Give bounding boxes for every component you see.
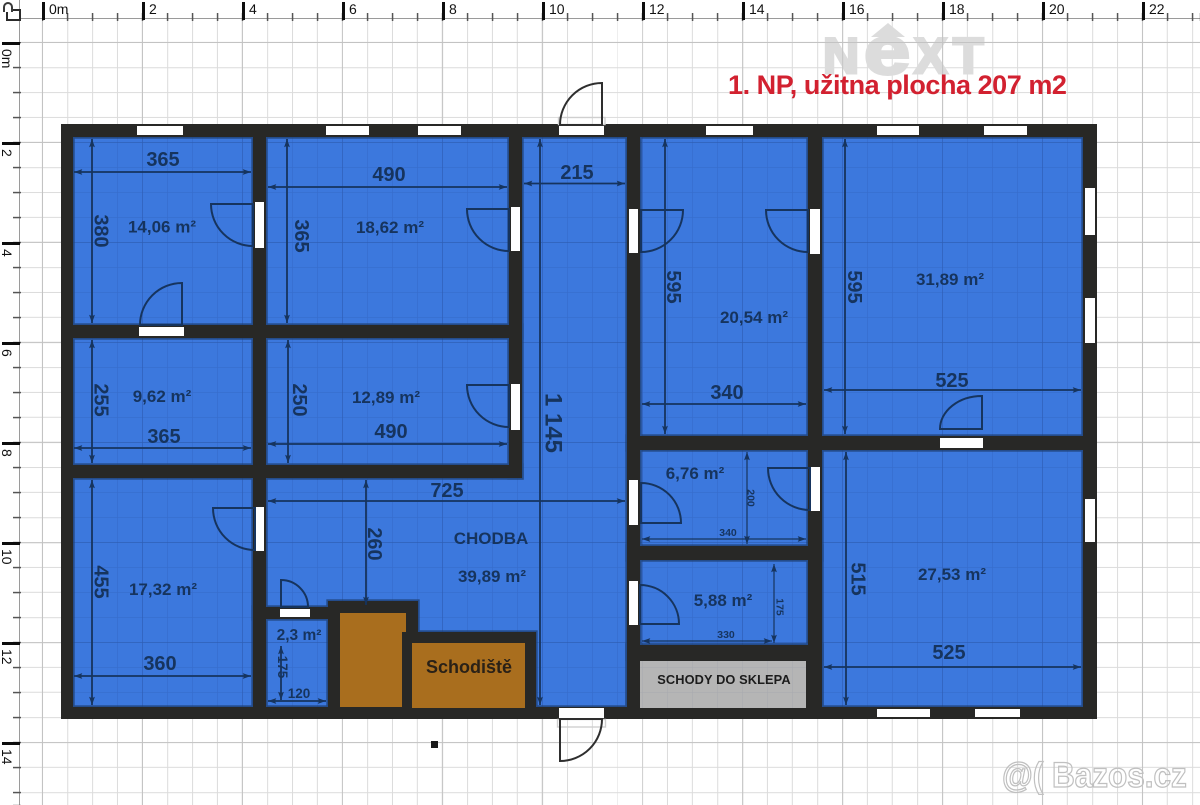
svg-text:455: 455 bbox=[90, 565, 112, 598]
svg-text:340: 340 bbox=[719, 527, 737, 539]
svg-text:595: 595 bbox=[662, 270, 684, 303]
svg-text:490: 490 bbox=[372, 164, 405, 186]
svg-text:260: 260 bbox=[363, 527, 385, 560]
svg-text:215: 215 bbox=[560, 162, 593, 184]
svg-text:515: 515 bbox=[847, 562, 869, 595]
svg-text:525: 525 bbox=[932, 642, 965, 664]
svg-text:20,54 m²: 20,54 m² bbox=[720, 308, 788, 327]
svg-text:27,53 m²: 27,53 m² bbox=[918, 565, 986, 584]
svg-text:490: 490 bbox=[374, 421, 407, 443]
svg-text:17,32 m²: 17,32 m² bbox=[129, 580, 197, 599]
svg-text:365: 365 bbox=[147, 426, 180, 448]
svg-text:360: 360 bbox=[143, 653, 176, 675]
svg-text:CHODBA: CHODBA bbox=[454, 529, 529, 548]
svg-text:14,06 m²: 14,06 m² bbox=[128, 218, 196, 237]
svg-text:595: 595 bbox=[843, 270, 865, 303]
svg-text:380: 380 bbox=[90, 214, 112, 247]
svg-text:5,88 m²: 5,88 m² bbox=[694, 591, 753, 610]
svg-text:365: 365 bbox=[290, 219, 312, 252]
svg-text:12,89 m²: 12,89 m² bbox=[352, 388, 420, 407]
svg-text:255: 255 bbox=[90, 383, 112, 416]
svg-text:175: 175 bbox=[275, 656, 290, 679]
svg-text:725: 725 bbox=[430, 480, 463, 502]
svg-text:18,62 m²: 18,62 m² bbox=[356, 218, 424, 237]
svg-text:330: 330 bbox=[717, 629, 735, 641]
svg-text:31,89 m²: 31,89 m² bbox=[916, 270, 984, 289]
svg-text:SCHODY DO SKLEPA: SCHODY DO SKLEPA bbox=[657, 672, 790, 687]
svg-text:1 145: 1 145 bbox=[540, 393, 567, 453]
svg-text:9,62 m²: 9,62 m² bbox=[133, 387, 192, 406]
svg-text:200: 200 bbox=[745, 489, 757, 507]
svg-text:Schodiště: Schodiště bbox=[426, 657, 512, 677]
svg-text:340: 340 bbox=[710, 382, 743, 404]
svg-text:175: 175 bbox=[774, 598, 786, 616]
svg-text:6,76 m²: 6,76 m² bbox=[666, 464, 725, 483]
svg-text:120: 120 bbox=[288, 686, 311, 701]
svg-text:525: 525 bbox=[935, 370, 968, 392]
svg-text:250: 250 bbox=[288, 383, 310, 416]
svg-text:2,3 m²: 2,3 m² bbox=[277, 627, 322, 644]
svg-text:39,89 m²: 39,89 m² bbox=[458, 567, 526, 586]
svg-text:365: 365 bbox=[146, 149, 179, 171]
